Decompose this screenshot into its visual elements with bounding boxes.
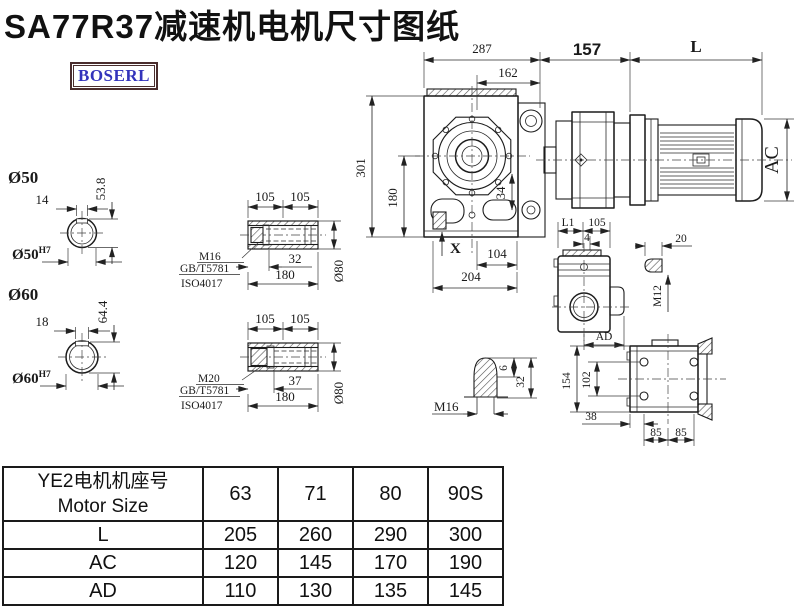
dim-L1: L1 [562, 217, 575, 229]
table-row-L: L 205 260 290 300 [3, 521, 503, 549]
value-L-63: 205 [203, 521, 278, 549]
drawing-sheet: SA77R37减速机电机尺寸图纸 BOSERL [0, 0, 800, 613]
label-d60: Ø60 [8, 285, 38, 304]
dim-key-18: 18 [36, 314, 49, 329]
dim-d80: Ø80 [331, 260, 346, 282]
dim-104: 104 [487, 246, 507, 261]
dim-32: 32 [289, 251, 302, 266]
retaining-bolt [251, 349, 267, 366]
foot-slot-right [483, 200, 516, 220]
label-iso: ISO4017 [181, 400, 223, 412]
row-label-AC: AC [3, 549, 203, 577]
gearbox-front-view [415, 86, 545, 254]
motor-size-63: 63 [203, 467, 278, 521]
value-AC-90s: 190 [428, 549, 503, 577]
dim-204: 204 [461, 269, 481, 284]
dim-180: 180 [275, 389, 295, 404]
key-detail [645, 259, 662, 272]
dim-M16: M16 [434, 399, 459, 414]
dim-105-right: 105 [290, 311, 310, 326]
motor-size-80: 80 [353, 467, 428, 521]
gearbox-top-view: 154 102 38 85 85 [561, 334, 726, 446]
motor-size-71: 71 [278, 467, 353, 521]
dim-6: 6 [498, 365, 510, 371]
dim-105-left: 105 [255, 311, 275, 326]
value-AD-63: 110 [203, 577, 278, 605]
row-label-L: L [3, 521, 203, 549]
spec-table-header-en: Motor Size [4, 494, 202, 519]
label-thread-m20: M20 [198, 373, 220, 385]
row-label-AD: AD [3, 577, 203, 605]
label-d50-h7: Ø50H7 [12, 246, 51, 263]
label-iso: ISO4017 [181, 278, 223, 290]
dim-38: 38 [585, 411, 597, 423]
value-L-90s: 300 [428, 521, 503, 549]
dim-AD: AD [596, 331, 613, 343]
dim-AC: AC [761, 146, 783, 174]
hollow-shaft-m20: 105 105 M20 GB/T5781 ISO4017 37 [179, 311, 346, 412]
oil-plug [433, 212, 446, 229]
value-AD-90s: 145 [428, 577, 503, 605]
dim-102: 102 [581, 371, 593, 389]
dim-key-14: 14 [36, 192, 50, 207]
shaft-section-d60: Ø60 18 64.4 Ø60H7 [8, 285, 124, 390]
dim-105-left: 105 [255, 189, 275, 204]
motor-side-view [536, 119, 792, 201]
value-AD-71: 130 [278, 577, 353, 605]
dim-180: 180 [275, 267, 295, 282]
label-thread-m16: M16 [199, 251, 221, 263]
value-AD-80: 135 [353, 577, 428, 605]
dim-154: 154 [561, 372, 573, 390]
value-L-80: 290 [353, 521, 428, 549]
dim-287: 287 [472, 41, 492, 56]
spec-table: YE2电机机座号 Motor Size 63 71 80 90S L 205 2… [2, 466, 504, 606]
dim-20: 20 [675, 233, 687, 245]
dim-64.4: 64.4 [95, 300, 110, 323]
vent-plug-detail: M16 6 32 [432, 358, 537, 414]
label-d60-h7: Ø60H7 [12, 370, 51, 387]
value-AC-71: 145 [278, 549, 353, 577]
shaft-section-d50: Ø50 14 53.8 Ø50H7 [8, 168, 122, 266]
table-row-AC: AC 120 145 170 190 [3, 549, 503, 577]
spec-table-header-cn: YE2电机机座号 [4, 469, 202, 494]
dim-85b: 85 [675, 427, 687, 439]
value-L-71: 260 [278, 521, 353, 549]
spec-table-header: YE2电机机座号 Motor Size [3, 467, 203, 521]
dim-37: 37 [289, 373, 303, 388]
dim-32: 32 [515, 376, 527, 388]
table-row-AD: AD 110 130 135 145 [3, 577, 503, 605]
value-AC-80: 170 [353, 549, 428, 577]
output-boss [610, 287, 624, 315]
label-standard: GB/T5781 [180, 385, 229, 397]
label-d50: Ø50 [8, 168, 38, 187]
dim-X: X [450, 241, 461, 257]
dim-157: 157 [573, 40, 601, 59]
label-standard: GB/T5781 [180, 263, 229, 275]
dim-301: 301 [353, 158, 368, 178]
dim-105-right: 105 [290, 189, 310, 204]
dim-53.8: 53.8 [93, 178, 108, 201]
dim-162: 162 [498, 65, 518, 80]
dim-d80: Ø80 [331, 382, 346, 404]
dim-M12: M12 [652, 285, 664, 307]
vent-plug-dome [474, 358, 497, 397]
value-AC-63: 120 [203, 549, 278, 577]
motor-size-90s: 90S [428, 467, 503, 521]
dim-4: 4 [584, 232, 590, 244]
dim-180: 180 [385, 188, 400, 208]
dim-34: 34 [493, 186, 508, 200]
dim-L: L [690, 37, 701, 56]
retaining-bolt [251, 228, 263, 243]
dim-85a: 85 [650, 427, 662, 439]
gearbox-side-view: L1 105 4 AD [552, 217, 692, 350]
hollow-shaft-m16: 105 105 M16 GB/T5781 ISO4017 32 [179, 189, 346, 290]
dim-105: 105 [588, 217, 606, 229]
